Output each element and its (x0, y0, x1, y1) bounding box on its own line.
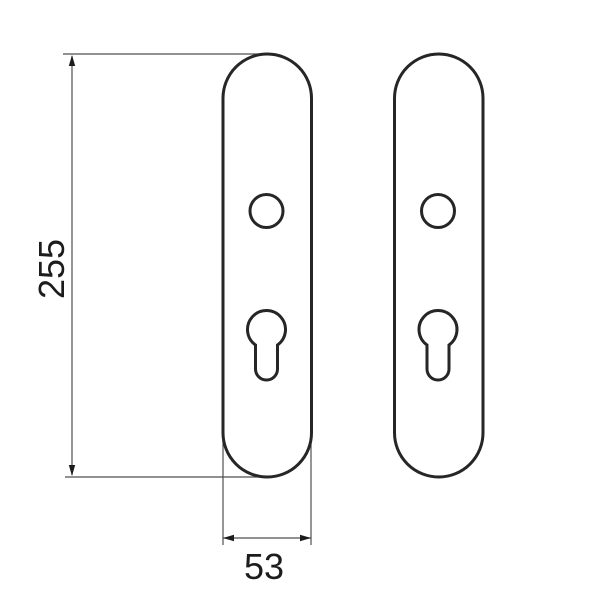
dimension-lines (63, 54, 311, 545)
right-euro-cylinder-keyhole (419, 311, 457, 380)
left-backplate (223, 54, 312, 477)
arrow-left-icon (223, 535, 234, 541)
left-euro-cylinder-keyhole (248, 311, 286, 380)
left-backplate-outline (223, 54, 312, 477)
right-backplate-outline (395, 54, 484, 477)
right-backplate (395, 54, 484, 477)
left-handle-hole (250, 195, 283, 228)
dimension-arrows (69, 55, 311, 541)
height-dimension-label: 255 (31, 239, 72, 299)
drawing-canvas: 255 53 (0, 0, 600, 600)
width-dimension-label: 53 (244, 546, 284, 587)
right-handle-hole (422, 195, 455, 228)
dimension-labels: 255 53 (31, 239, 284, 587)
arrow-right-icon (300, 535, 311, 541)
backplate-technical-drawing: 255 53 (0, 0, 600, 600)
arrow-down-icon (69, 465, 75, 476)
backplates (223, 54, 483, 477)
arrow-up-icon (69, 55, 75, 66)
